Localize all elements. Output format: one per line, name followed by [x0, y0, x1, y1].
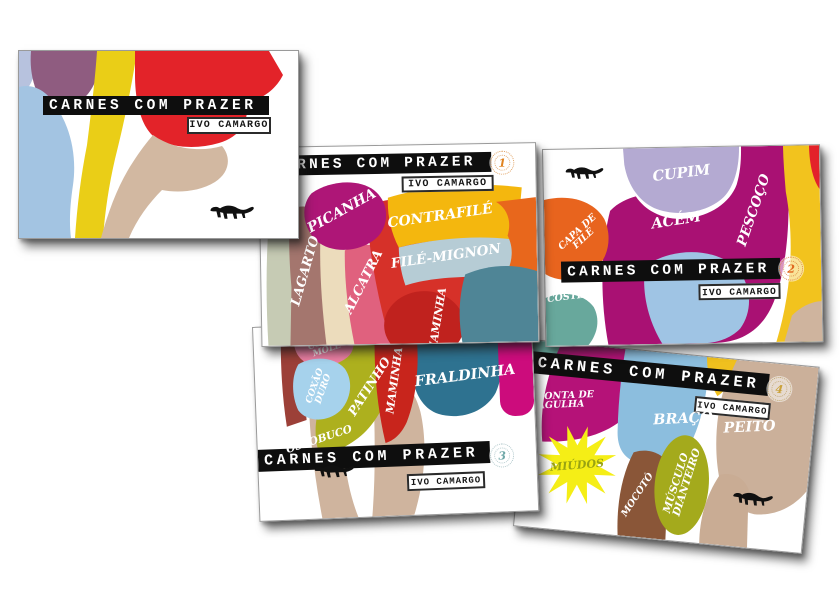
stamp-number: 3: [498, 449, 506, 462]
author-text: IVO CAMARGO: [411, 475, 482, 488]
author-box: IVO CAMARGO: [402, 175, 494, 193]
cover-card: CARNES COM PRAZER IVO CAMARGO: [18, 50, 299, 239]
author-text: IVO CAMARGO: [702, 285, 777, 297]
artboard: CARNES COM PRAZER IVO CAMARGO CARNES C: [0, 0, 839, 599]
cuts-card-3: CARNES COM PRAZER 3 IVO CAMARGO COXÃO MO…: [252, 316, 539, 522]
ferret-icon: [564, 163, 604, 180]
ferret-silhouette: [209, 201, 255, 220]
title-text: CARNES COM PRAZER: [567, 261, 770, 281]
cover-artwork: [19, 51, 298, 238]
cuts-card-2: CARNES COM PRAZER 2 IVO CAMARGO CUPIM AC…: [542, 144, 823, 347]
stamp-number: 1: [498, 156, 506, 169]
ferret-silhouette: [313, 460, 356, 479]
peito-label: PEITO: [723, 419, 776, 435]
teal-corner-shape: [459, 265, 539, 342]
stamp-number: 4: [775, 382, 784, 396]
ponta-de-agulha-label: PONTA DE AGULHA: [537, 390, 604, 411]
cuts-card-4: CARNES COM PRAZER 4 IVO CAMARGO PONTA DE…: [513, 339, 820, 554]
author-text: IVO CAMARGO: [408, 178, 487, 190]
stamp-number: 2: [787, 262, 795, 275]
ferret-icon: [209, 201, 255, 220]
title-bar: CARNES COM PRAZER: [267, 152, 491, 176]
cuts-card-1: CARNES COM PRAZER 1 IVO CAMARGO PICANHA …: [258, 142, 539, 347]
author-text: IVO CAMARGO: [189, 120, 268, 131]
ferret-silhouette: [564, 163, 604, 180]
title-bar: CARNES COM PRAZER: [561, 258, 780, 283]
title-text: CARNES COM PRAZER: [49, 98, 256, 114]
braco-label: BRAÇO: [653, 411, 713, 427]
title-bar: CARNES COM PRAZER: [43, 96, 269, 115]
ferret-icon: [313, 460, 356, 479]
title-text: CARNES COM PRAZER: [273, 154, 476, 174]
author-box: IVO CAMARGO: [698, 283, 780, 300]
author-box: IVO CAMARGO: [187, 117, 271, 134]
author-box: IVO CAMARGO: [407, 471, 486, 491]
cover-tan-shape: [101, 135, 228, 238]
